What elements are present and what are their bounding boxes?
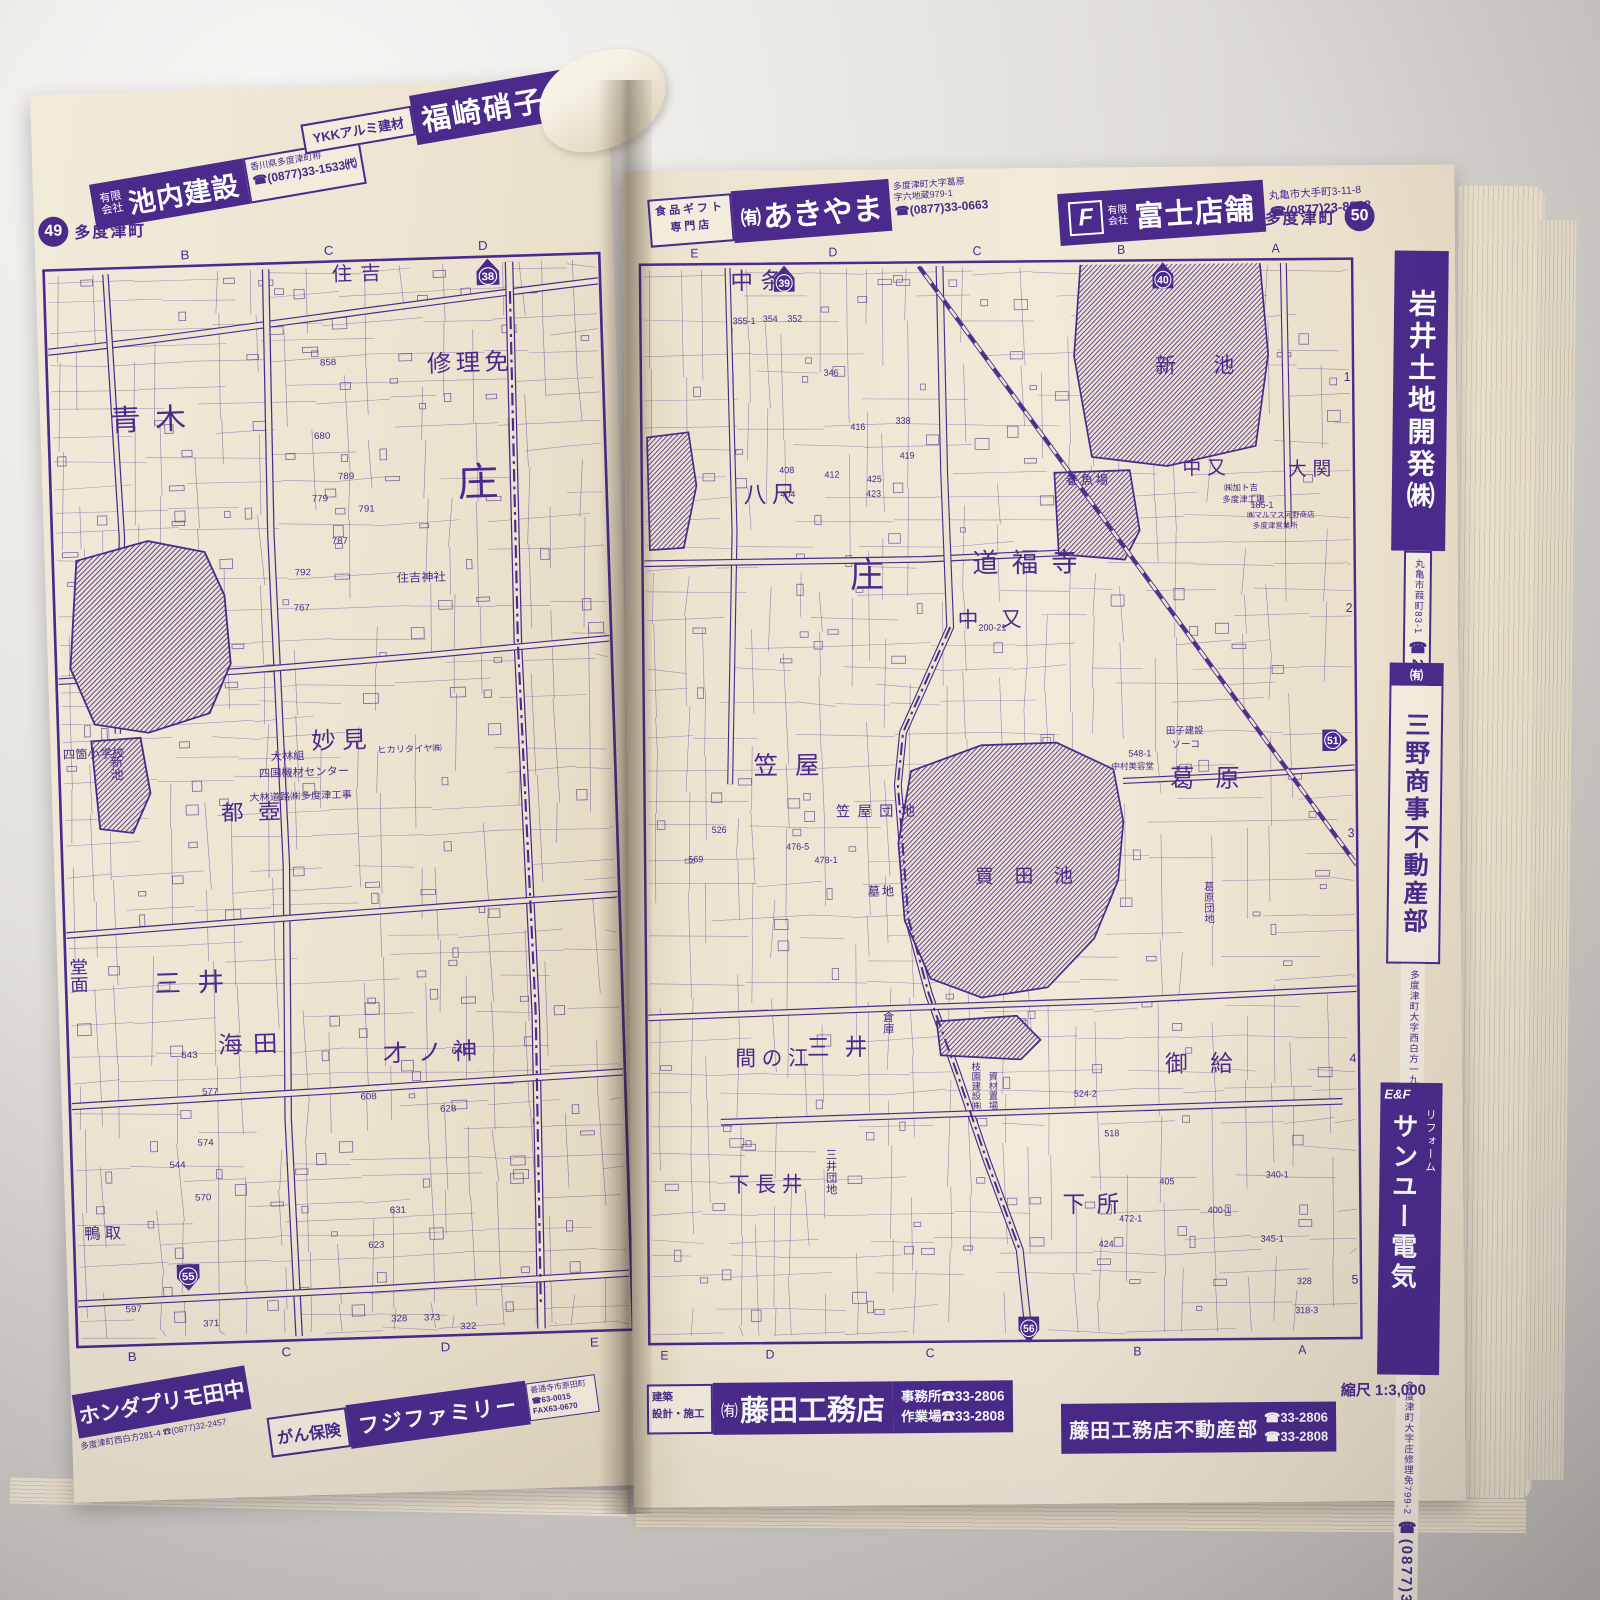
right-page-town-label: 多度津町 [1264, 204, 1336, 229]
grid-letter-top: D [828, 245, 837, 259]
parcel-number: 400-1 [1208, 1205, 1231, 1215]
map-label: 大林組 [270, 748, 304, 763]
map-label: 資材置場 [986, 1071, 998, 1111]
parcel-number: 767 [294, 602, 311, 613]
parcel-number: 322 [460, 1321, 477, 1332]
parcel-number: 472-1 [1119, 1213, 1142, 1223]
grid-letter-top: D [478, 238, 488, 253]
parcel-number: 373 [424, 1312, 441, 1323]
parcel-number: 423 [866, 489, 881, 499]
parcel-number: 526 [712, 825, 727, 835]
map-label: 庄 [850, 556, 884, 595]
map-label: 堂面 [67, 957, 89, 993]
parcel-number: 569 [688, 854, 703, 864]
parcel-number: 338 [896, 415, 911, 425]
grid-letter-top: C [973, 244, 982, 258]
parcel-number: 404 [780, 489, 795, 499]
ad-honda-primo-tanaka: ホンダプリモ田中 多度津町西白方281-4 ☎(0877)32-2457 [72, 1365, 254, 1452]
parcel-number: 340-1 [1266, 1169, 1289, 1179]
ad-sanyu-logo: E&F [1384, 1086, 1410, 1101]
parcel-number: 787 [332, 536, 349, 547]
ad-fujitempo-prefix2: 会社 [1108, 215, 1131, 228]
parcel-number: 597 [125, 1304, 142, 1315]
ad-fuji-family: がん保険 フジファミリー 善通寺市原田町 ☎63-0015 FAX63-0670 [266, 1371, 600, 1460]
map-left: 青木庄修理免住吉妙見都壺三井海田才ノ神堂面鴨取新池四箇小学校住吉神社大林組四国機… [41, 230, 636, 1371]
parcel-number: 345-1 [1261, 1233, 1284, 1243]
map-label: 庄 [457, 461, 499, 505]
map-label: 多度津営業所 [1253, 520, 1299, 531]
ad-fujita-name: 藤田工務店 [740, 1386, 885, 1429]
grid-letter-bottom: C [281, 1344, 291, 1359]
map-label: 大関 [1288, 458, 1337, 481]
route-shield-38: 38 [476, 258, 499, 285]
map-label: 中村美容堂 [1112, 760, 1155, 772]
photo-background: 有限会社 池内建設 香川県多度津町栫 ☎(0877)33-1533㈹ YKKアル… [0, 0, 1600, 1600]
ad-fujifam-tagline: がん保険 [267, 1407, 352, 1457]
grid-letter-top: C [324, 243, 334, 258]
parcel-number: 476-5 [786, 842, 809, 852]
right-bottom-ads: 建築 設計・施工 ㈲ 藤田工務店 事務所☎33-2806 作業場☎33-2808… [633, 1372, 1466, 1503]
parcel-number: 416 [850, 422, 865, 432]
svg-text:56: 56 [1023, 1323, 1035, 1335]
grid-row-number: 1 [1344, 370, 1351, 384]
map-label: 墓地 [868, 884, 896, 898]
ad-akiyama-name: あきやま [761, 183, 884, 236]
ad-sanyu-phone: ☎(0877)33-1744 [1396, 1519, 1416, 1600]
parcel-number: 628 [440, 1103, 457, 1114]
route-shield-55: 55 [177, 1264, 200, 1291]
map-label: 御給 [1165, 1050, 1256, 1077]
map-right: 中条八尺庄道福寺中又新池養魚場中又大関葛原笠屋笠屋団地買田池墓地間の江三井倉庫三… [638, 235, 1364, 1367]
grid-row-number: 3 [1348, 826, 1355, 840]
parcel-number: 352 [787, 314, 802, 324]
ad-ikeuchi-name: 池内建設 [125, 163, 242, 220]
parcel-number: 318-3 [1295, 1305, 1318, 1315]
ad-fujita-fudosan-phone2: ☎33-2808 [1264, 1427, 1328, 1447]
parcel-number: 425 [867, 474, 882, 484]
parcel-number: 412 [824, 469, 839, 479]
ad-fujita-prefix: ㈲ [721, 1396, 738, 1421]
ad-fujita-office-phone: 事務所☎33-2806 [901, 1386, 1005, 1407]
ad-sanyu-tagline: リフォーム [1422, 1109, 1439, 1174]
map-label: 三井団地 [824, 1148, 837, 1195]
parcel-number: 792 [295, 567, 312, 578]
parcel-number: 623 [368, 1240, 385, 1251]
map-label: 海田 [218, 1031, 289, 1059]
map-label: 枝園建設㈱ [969, 1061, 981, 1111]
ad-iwai-address: 丸亀市葭町83-1 [1410, 559, 1425, 635]
fuji-tempo-logo-icon: F [1068, 200, 1104, 236]
parcel-number: 478-1 [815, 855, 838, 865]
map-label: 下長井 [729, 1172, 808, 1197]
parcel-number: 608 [360, 1091, 377, 1102]
parcel-number: 371 [203, 1318, 220, 1329]
left-page-town-label: 多度津町 [74, 217, 147, 243]
map-label: 笠屋団地 [836, 802, 923, 820]
grid-row-number: 4 [1350, 1051, 1357, 1065]
svg-text:40: 40 [1157, 274, 1169, 286]
map-label: ㈱加ト吉 [1224, 481, 1258, 492]
parcel-number: 419 [900, 450, 915, 460]
svg-text:51: 51 [1327, 735, 1339, 747]
grid-letter-bottom: B [1133, 1344, 1141, 1358]
parcel-number: 424 [1099, 1239, 1114, 1249]
svg-text:55: 55 [182, 1271, 195, 1283]
map-label: 才ノ神 [382, 1038, 488, 1068]
parcel-number: 789 [338, 471, 355, 482]
grid-letter-bottom: E [660, 1348, 668, 1362]
map-label: ソーコ [1172, 739, 1200, 750]
parcel-number: 544 [169, 1160, 186, 1171]
ad-fujita-fudosan-name: 藤田工務店不動産部 [1069, 1413, 1258, 1444]
right-page-number-badge: 50 [1344, 201, 1374, 231]
grid-letter-bottom: E [590, 1335, 600, 1350]
grid-letter-bottom: D [440, 1339, 450, 1354]
ad-fujifam-name: フジファミリー [346, 1381, 531, 1449]
ad-akiyama-prefix: ㈲ [740, 201, 762, 231]
map-label: 四箇小学校 [63, 745, 125, 762]
map-label: 養魚場 [1066, 472, 1111, 488]
map-label: 住吉 [331, 262, 389, 286]
ad-iwai-name: 岩井土地開発㈱ [1391, 251, 1449, 552]
parcel-number: 574 [197, 1137, 214, 1148]
parcel-number: 791 [358, 504, 375, 515]
parcel-number: 548-1 [1128, 748, 1151, 758]
parcel-number: 631 [390, 1205, 407, 1216]
parcel-number: 405 [1159, 1176, 1174, 1186]
ad-fujitempo-name: 富士店舗 [1133, 185, 1256, 235]
map-label: 買田池 [975, 865, 1094, 888]
parcel-number: 328 [391, 1313, 408, 1324]
parcel-number: 355-1 [733, 316, 756, 326]
ad-ikeuchi-prefix: 有限会社 [99, 191, 127, 218]
map-label: 三井 [154, 967, 241, 999]
parcel-number: 200-21 [978, 622, 1006, 632]
map-label: 四国機材センター [259, 764, 350, 780]
parcel-number: 524-2 [1074, 1088, 1097, 1098]
right-sidebar-ads: 岩井土地開発㈱ 丸亀市葭町83-1 ☎24-5101 FAX24-5110 ㈲ … [1361, 250, 1466, 1481]
parcel-number: 543 [181, 1050, 198, 1061]
parcel-number: 346 [824, 368, 839, 378]
left-page-number-badge: 49 [38, 216, 69, 247]
map-label: 道福寺 [972, 547, 1091, 578]
ad-fujita-tag1: 建築 [652, 1389, 708, 1406]
grid-row-number: 5 [1352, 1272, 1359, 1286]
grid-letter-bottom: B [128, 1349, 137, 1364]
parcel-number: 779 [312, 493, 329, 504]
map-label: 青木 [110, 403, 201, 438]
map-label: 住吉神社 [396, 569, 446, 585]
parcel-number: 577 [202, 1086, 219, 1097]
map-label: 田子建設 [1166, 724, 1204, 737]
svg-text:38: 38 [481, 271, 494, 283]
grid-letter-top: B [1117, 243, 1125, 257]
left-page-header: 49 多度津町 [38, 214, 147, 247]
map-label: 鴨取 [84, 1224, 126, 1243]
map-label: 妙見 [311, 727, 373, 755]
ad-sanyu-name: サンユー電気 [1384, 1112, 1423, 1292]
left-bottom-ads: ホンダプリモ田中 多度津町西白方281-4 ☎(0877)32-2457 がん保… [70, 1357, 648, 1495]
map-label: 葛原 [1170, 764, 1261, 793]
grid-row-number: 2 [1346, 601, 1353, 615]
parcel-number: 185-1 [1251, 500, 1274, 510]
grid-letter-bottom: C [926, 1346, 935, 1360]
page-left: 有限会社 池内建設 香川県多度津町栫 ☎(0877)33-1533㈹ YKKアル… [30, 77, 652, 1502]
grid-letter-bottom: D [766, 1347, 775, 1361]
map-label: ヒカリタイヤ㈱ [377, 742, 442, 755]
ad-fujita-fudosan-phone1: ☎33-2806 [1264, 1407, 1328, 1427]
map-label: 中又 [1182, 457, 1231, 480]
map-label: 三井 [807, 1033, 883, 1060]
map-scale-note: 縮尺 1:3,000 [1341, 1379, 1426, 1401]
ad-fujita-fudosan: 藤田工務店不動産部 ☎33-2806 ☎33-2808 [1061, 1401, 1336, 1453]
grid-letter-top: E [690, 246, 698, 260]
map-label: ㈱マルマス河野商店 [1247, 509, 1315, 520]
map-label: 間の江 [735, 1046, 814, 1071]
parcel-number: 570 [195, 1192, 212, 1203]
parcel-number: 518 [1104, 1128, 1119, 1138]
parcel-number: 328 [1297, 1276, 1312, 1286]
svg-text:39: 39 [778, 278, 790, 290]
map-label: 倉庫 [882, 1010, 895, 1035]
grid-letter-top: B [180, 247, 189, 262]
right-page-header: 多度津町 50 [1264, 201, 1374, 232]
ad-fukusaki-tagline: YKKアルミ建材 [300, 106, 416, 155]
map-label: 修理免 [427, 349, 514, 378]
map-label: 笠屋 [753, 751, 836, 780]
ad-akiyama: 食品ギフト 専門店 ㈲ あきやま 多度津町大字葛原 字六地蔵979-1 ☎(08… [647, 170, 1004, 250]
map-label: 大林道路㈱多度津工事 [249, 788, 352, 804]
parcel-number: 858 [320, 357, 337, 368]
grid-letter-top: A [1272, 241, 1281, 255]
parcel-number: 354 [763, 314, 778, 324]
grid-letter-bottom: A [1298, 1343, 1307, 1357]
route-shield-56: 56 [1018, 1316, 1039, 1342]
parcel-number: 408 [779, 465, 794, 475]
parcel-number: 641 [451, 1045, 468, 1056]
ad-fujita-workshop-phone: 作業場☎33-2808 [901, 1406, 1005, 1427]
ad-mino-name: 三野商事不動産部 [1386, 685, 1443, 964]
ad-sanyu-denki: E&F リフォーム サンユー電気 多度津町大字庄修理免799-2 ☎(0877)… [1366, 1082, 1449, 1600]
ad-mino-prefix: ㈲ [1389, 662, 1443, 686]
page-right: 食品ギフト 専門店 ㈲ あきやま 多度津町大字葛原 字六地蔵979-1 ☎(08… [622, 164, 1466, 1507]
map-label: 葛原団地 [1203, 880, 1215, 924]
ad-fujita-koumuten: 建築 設計・施工 ㈲ 藤田工務店 事務所☎33-2806 作業場☎33-2808 [647, 1380, 1013, 1435]
parcel-number: 680 [314, 431, 331, 442]
ad-fujita-tag2: 設計・施工 [652, 1406, 708, 1423]
map-label: 新池 [1155, 353, 1272, 378]
